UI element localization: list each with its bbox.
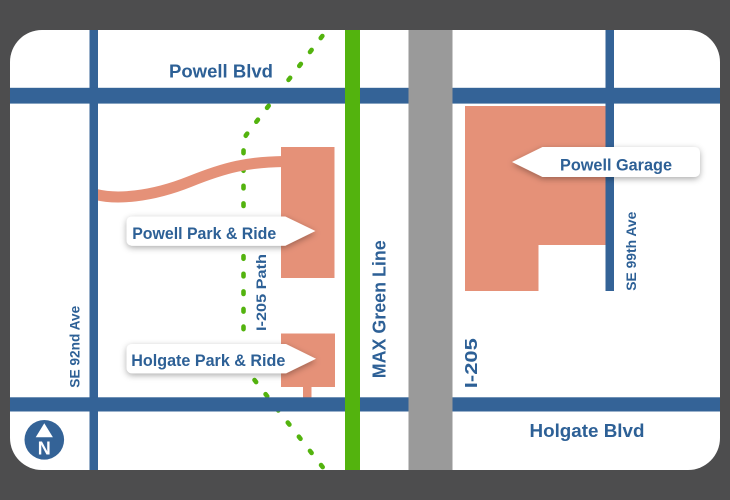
svg-text:Powell Blvd: Powell Blvd	[169, 61, 273, 82]
svg-text:SE 99th Ave: SE 99th Ave	[624, 211, 639, 290]
svg-text:I-205 Path: I-205 Path	[254, 254, 269, 331]
svg-text:Powell Garage: Powell Garage	[560, 156, 672, 175]
svg-text:Holgate Blvd: Holgate Blvd	[530, 420, 645, 441]
svg-text:Holgate Park & Ride: Holgate Park & Ride	[131, 351, 285, 370]
svg-text:I-205: I-205	[461, 338, 481, 388]
svg-text:Powell Park & Ride: Powell Park & Ride	[132, 224, 276, 243]
svg-text:N: N	[38, 438, 51, 458]
svg-text:MAX Green Line: MAX Green Line	[368, 240, 389, 378]
svg-text:SE 92nd Ave: SE 92nd Ave	[68, 305, 83, 387]
